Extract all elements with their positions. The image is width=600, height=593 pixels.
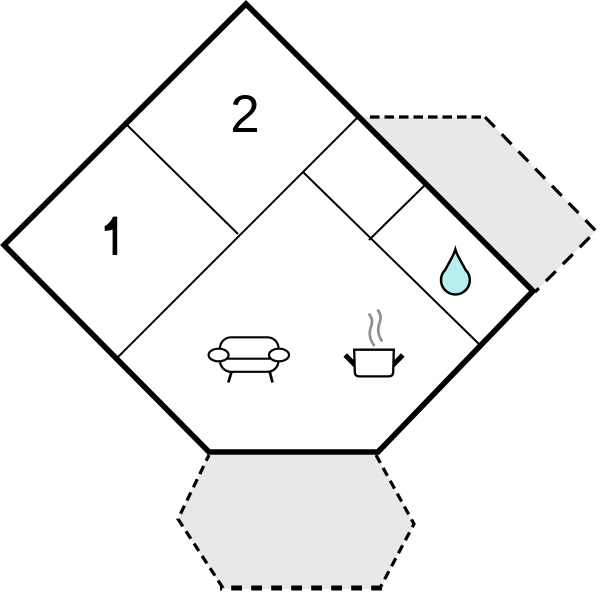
svg-text:2: 2 <box>230 85 259 144</box>
